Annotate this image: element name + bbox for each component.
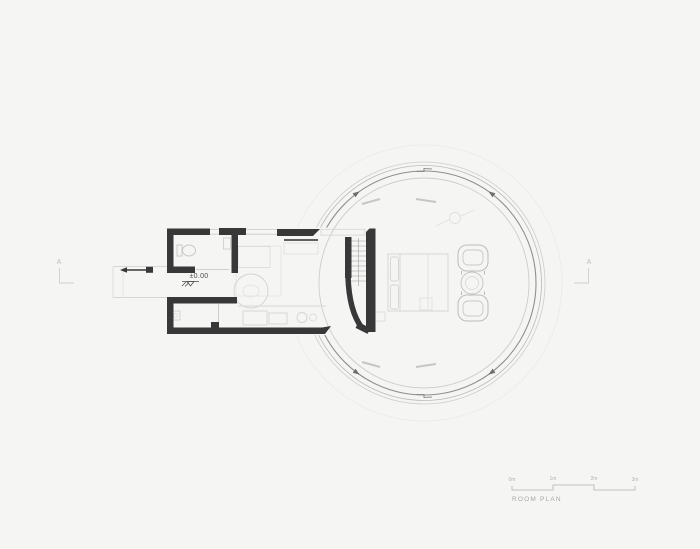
wall-top-2 [219,228,246,235]
bed-frame [388,254,448,311]
wall-room2-stub [211,322,219,328]
side-table [461,272,483,294]
side-table-inner [466,277,479,290]
door-swing-arrow [120,267,127,272]
wall-room2-top [167,297,237,304]
armchair-top [458,245,488,275]
scale-label-0: 0m [509,477,516,483]
section-marker-right: A [574,259,592,283]
scale-bar: 0m 1m 2m 3m [509,476,639,490]
seating-group [458,245,488,321]
scale-label-3: 3m [632,477,639,483]
wall-stair-right [366,229,376,333]
bed [375,254,448,321]
section-marker-left: A [57,259,74,283]
floor-plan-sheet: ±0.00 A A 0m 1m 2m 3m ROOM PLAN [0,0,700,549]
dimension-mark [416,199,436,202]
level-label: ±0.00 [190,273,209,280]
wall-left-upper [167,229,174,267]
wall-stair-left [345,237,352,278]
bed-throw [420,298,432,310]
plan-title: ROOM PLAN [512,496,562,503]
entry-door [120,267,153,273]
armchair-bottom [458,292,488,322]
scale-label-1: 1m [550,476,557,482]
scale-label-2: 2m [591,476,598,482]
section-marker-right-label: A [587,259,592,266]
pillow [391,257,399,281]
wall-top-3 [277,229,320,236]
dimension-mark [362,199,380,204]
section-marker-left-label: A [57,259,62,266]
wall-bottom [167,328,322,335]
dimension-mark [416,364,436,367]
pillow [391,285,399,309]
dimension-mark [362,362,380,367]
ceiling-light-icon [436,210,474,226]
entry-walkway [113,267,167,298]
wall-bath-right [232,235,239,273]
nightstand [375,312,385,321]
floor-plan: ±0.00 A A 0m 1m 2m 3m ROOM PLAN [0,0,700,549]
